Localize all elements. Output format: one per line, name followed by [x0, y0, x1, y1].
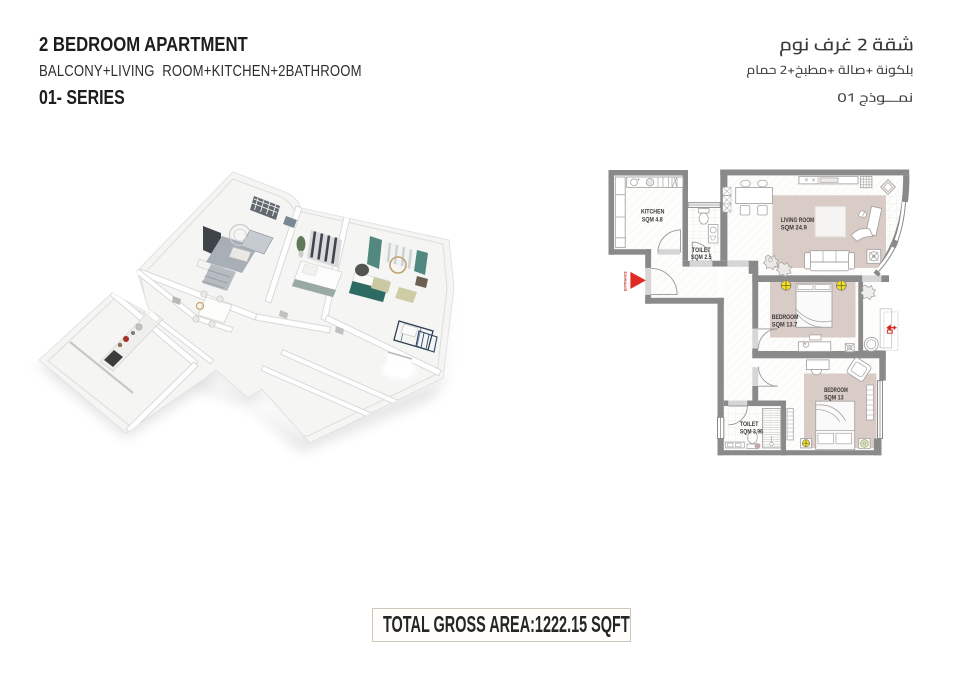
svg-text:KITCHEN: KITCHEN	[641, 209, 665, 216]
svg-text:SQM 13.7: SQM 13.7	[772, 321, 798, 328]
svg-text:SQM 2.5: SQM 2.5	[691, 254, 712, 261]
svg-text:BEDROOM: BEDROOM	[772, 314, 799, 321]
svg-text:TOILET: TOILET	[740, 421, 759, 428]
svg-text:BEDROOM: BEDROOM	[824, 387, 848, 394]
svg-text:ENTRANCE: ENTRANCE	[624, 270, 628, 291]
svg-text:SQM 13: SQM 13	[824, 394, 844, 401]
svg-text:SQM 24.9: SQM 24.9	[781, 224, 808, 231]
svg-text:LIVING ROOM: LIVING ROOM	[781, 217, 814, 224]
svg-text:SQM 3.96: SQM 3.96	[740, 428, 763, 435]
svg-text:TOILET: TOILET	[692, 247, 711, 254]
svg-text:SQM 4.8: SQM 4.8	[642, 216, 663, 223]
